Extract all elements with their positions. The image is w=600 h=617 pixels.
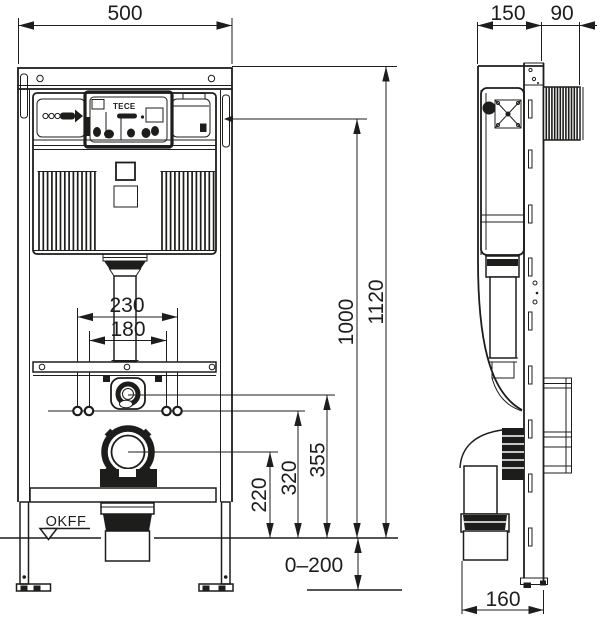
drain-assembly-side: [460, 428, 524, 560]
installation-frame-drawing: 500: [0, 0, 600, 617]
dim-label-1000: 1000: [335, 299, 358, 346]
drain-pipe: [101, 503, 154, 561]
dim-label-150: 150: [490, 2, 525, 25]
side-view: 150 90: [460, 2, 597, 614]
dim-label-90: 90: [550, 2, 573, 25]
rail-slots: [529, 100, 533, 546]
technical-drawing: 500: [0, 0, 600, 617]
dim-label-500: 500: [107, 2, 142, 25]
dim-label-355: 355: [307, 442, 330, 477]
dim-total-height: 1120: [365, 67, 390, 539]
drain-connection: [105, 429, 279, 476]
valve-arrow-icon: [75, 110, 83, 123]
dim-outlet-height: 220: [248, 452, 274, 538]
dim-leg-adjustment: 0–200: [285, 538, 402, 590]
flush-valve-unit: [172, 94, 210, 138]
floor-level-marker: OKFF: [40, 514, 90, 540]
dim-outlet-offset: 160: [462, 561, 544, 614]
tece-logo: TECE: [113, 102, 136, 111]
dim-label-0-200: 0–200: [285, 554, 343, 577]
dim-label-220: 220: [248, 477, 271, 512]
inspection-window: TECE: [85, 92, 172, 147]
service-opening: [114, 186, 138, 207]
front-view: 500: [0, 2, 402, 591]
dim-flush-pipe-height: 355: [307, 395, 331, 538]
dim-label-1120: 1120: [365, 279, 388, 324]
dim-upper-height: 1000: [335, 119, 361, 538]
dim-frame-depth: 150 90: [478, 2, 598, 85]
bottom-crossbar: [30, 488, 216, 502]
drain-elbow: [100, 469, 157, 487]
floor-level-label: OKFF: [46, 514, 87, 530]
wall-bracket: [544, 378, 572, 473]
flush-pipe-side: [478, 256, 522, 411]
cistern-ribs: [38, 172, 216, 251]
dim-frame-width: 500: [19, 2, 233, 64]
flush-bend-housing: [111, 378, 145, 409]
actuator-rod-opening: [116, 163, 135, 181]
filling-valve-unit: [37, 99, 85, 137]
dim-label-160: 160: [485, 588, 520, 611]
cistern-side: [481, 88, 524, 255]
dim-label-230: 230: [109, 294, 144, 317]
dim-label-320: 320: [278, 460, 301, 495]
corrugated-pipe: [544, 87, 584, 140]
dim-label-180: 180: [110, 318, 145, 341]
cistern: TECE: [33, 92, 216, 254]
dim-anchor-height: 320: [278, 411, 302, 538]
